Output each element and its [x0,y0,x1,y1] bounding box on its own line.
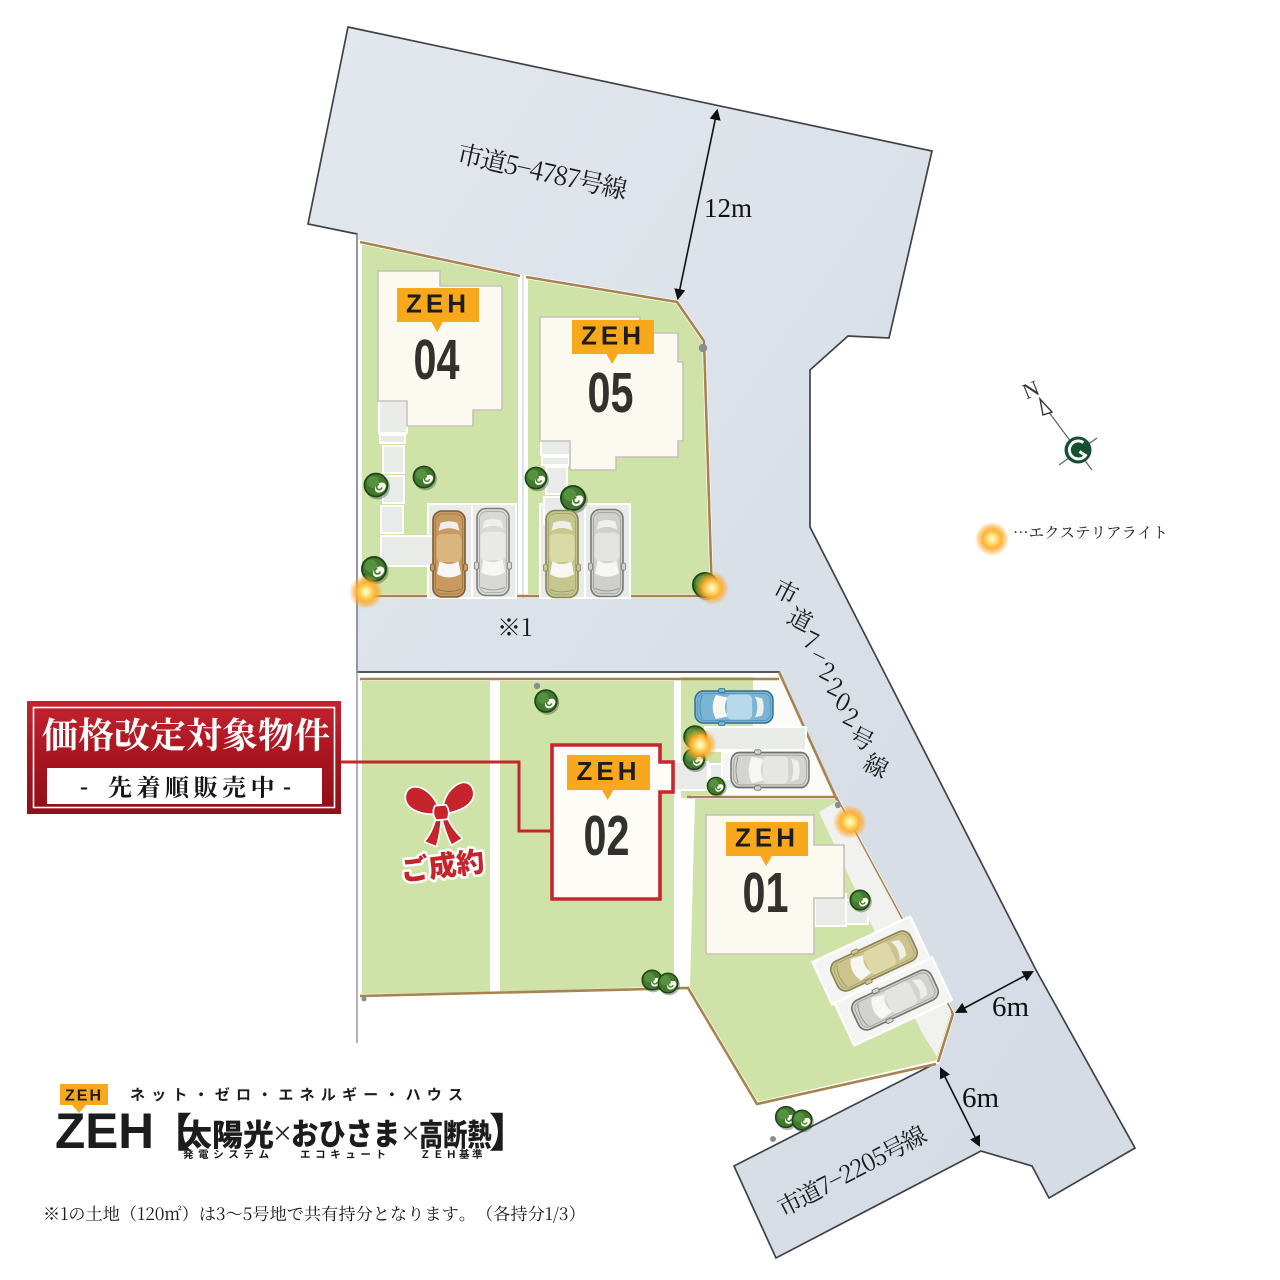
svg-text:ZEH: ZEH [65,1088,103,1105]
svg-text:12m: 12m [704,193,752,223]
svg-text:01: 01 [743,861,789,925]
svg-text:ZEH: ZEH [735,822,799,852]
svg-text:ZEH: ZEH [55,1103,154,1159]
svg-text:6m: 6m [992,991,1030,1023]
svg-text:05: 05 [588,361,634,425]
svg-text:04: 04 [414,328,460,392]
svg-text:ZEH: ZEH [577,756,641,786]
svg-text:ZEH: ZEH [406,288,470,318]
svg-text:-: - [283,774,291,800]
svg-text:-: - [80,774,88,800]
svg-text:ZEH: ZEH [581,320,645,350]
svg-text:02: 02 [584,804,630,868]
svg-text:6m: 6m [962,1082,1000,1114]
